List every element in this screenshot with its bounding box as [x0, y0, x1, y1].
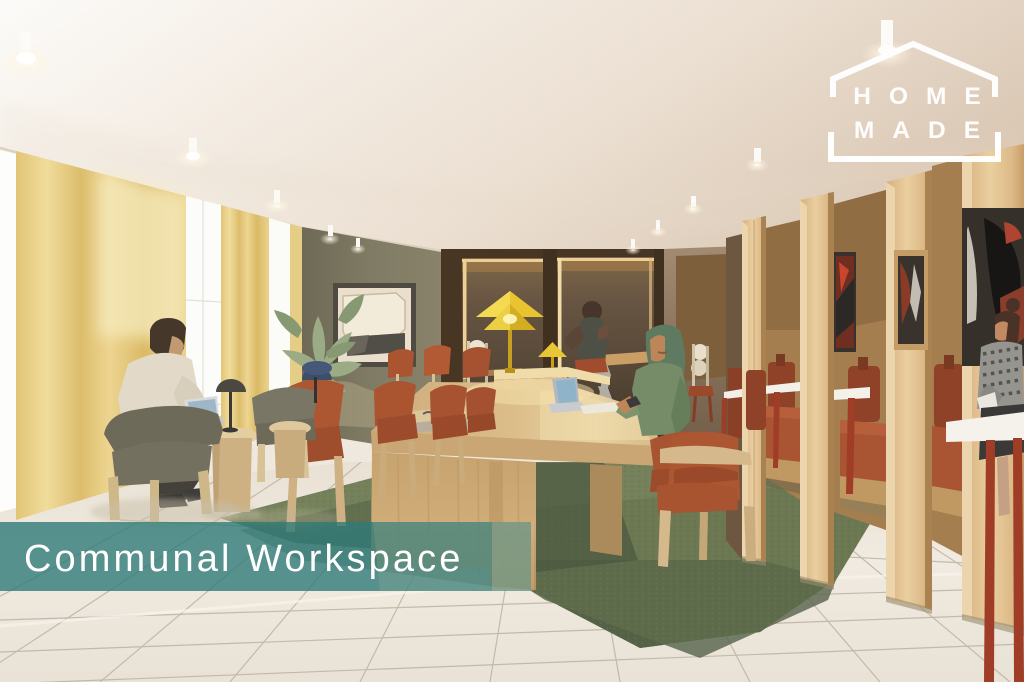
svg-text:Communal Workspace: Communal Workspace — [24, 538, 463, 580]
svg-text:MADE: MADE — [854, 117, 998, 144]
svg-text:HOME: HOME — [853, 83, 999, 110]
